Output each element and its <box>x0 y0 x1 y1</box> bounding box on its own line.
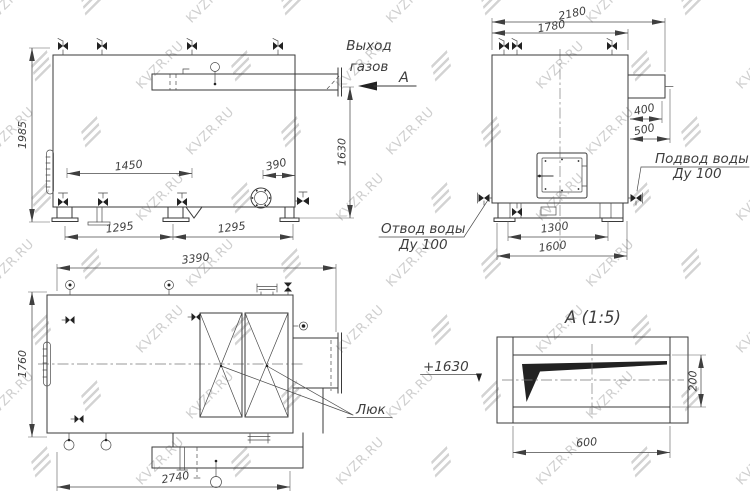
detail-title: А (1:5) <box>564 308 621 327</box>
bottom-fitting <box>101 440 111 450</box>
top-flange <box>257 284 277 295</box>
weld-wedge <box>522 361 667 402</box>
dim-top-span-label: 1450 <box>114 158 143 174</box>
top-view: 3390 1760 2740 Люк <box>16 250 392 491</box>
top-valve <box>607 39 617 56</box>
drain-valve <box>177 193 187 206</box>
water-outlet-label-line2: Ду 100 <box>398 237 448 253</box>
drain-valve <box>58 193 68 206</box>
dim-overall-height-label: 1985 <box>16 121 29 149</box>
dim-height-label: 200 <box>687 371 700 392</box>
side-manhole <box>47 150 54 194</box>
front-view-dimensions: 2180 1780 400 500 1300 1600 <box>492 4 670 260</box>
dim-length-label: 600 <box>576 435 598 450</box>
top-valve <box>273 39 283 56</box>
dim-overall-length-label: 3390 <box>181 250 210 266</box>
water-inlet-callout: Подвод воды Ду 100 <box>637 151 749 191</box>
duct-fitting <box>211 63 220 72</box>
side-view-dimensions: 1985 1630 1450 390 1295 1295 <box>16 48 354 240</box>
burner-flange <box>251 188 271 208</box>
bottom-fitting <box>211 477 222 488</box>
side-valve <box>297 197 309 205</box>
dim-outlet-height-label: 1630 <box>336 138 349 166</box>
top-valve <box>512 39 522 56</box>
detail-view-a: А (1:5) 200 600 +1630 <box>421 308 707 458</box>
side-view: 1985 1630 1450 390 1295 1295 Выход газов… <box>16 38 416 240</box>
boiler-body-side <box>53 55 295 207</box>
water-inlet-label-line2: Ду 100 <box>672 166 722 182</box>
dim-leg-span-2-label: 1295 <box>217 219 246 235</box>
internal-valve <box>188 313 201 321</box>
flue-outlet-front <box>628 75 665 98</box>
hatch-callout: Люк <box>220 365 392 418</box>
internal-valve <box>71 415 84 423</box>
gas-outlet-label-line2: газов <box>350 59 389 75</box>
front-view: 2180 1780 400 500 1300 1600 Подвод воды … <box>379 4 749 260</box>
dim-flue-overall-label: 500 <box>633 121 656 138</box>
dim-base-length-label: 2740 <box>161 469 191 486</box>
drain-valve <box>98 193 108 206</box>
dim-leg-span-label: 1300 <box>540 219 569 235</box>
flue-duct-side <box>152 74 338 90</box>
section-letter: А <box>398 70 409 86</box>
top-valve <box>58 39 68 56</box>
water-outlet-callout: Отвод воды Ду 100 <box>379 200 488 253</box>
dim-overall-width-label: 1760 <box>16 350 29 378</box>
top-valve <box>284 283 292 292</box>
water-outlet-label-line1: Отвод воды <box>381 221 466 237</box>
top-valve <box>499 39 509 56</box>
dim-leg-span-1-label: 1295 <box>105 219 134 235</box>
elevation-mark-label: +1630 <box>423 359 469 375</box>
leg <box>57 207 72 218</box>
boiler-drawing: 1985 1630 1450 390 1295 1295 Выход газов… <box>0 0 750 500</box>
bottom-fitting <box>64 440 74 450</box>
top-valve <box>187 39 197 56</box>
internal-valve <box>62 316 75 324</box>
gas-outlet-label-line1: Выход <box>346 38 392 54</box>
dim-burner-to-wall-label: 390 <box>264 156 288 174</box>
hatch-label: Люк <box>355 402 387 418</box>
dim-flue-length-label: 400 <box>633 101 656 118</box>
elevation-callout: +1630 <box>421 359 483 382</box>
water-inlet-label-line1: Подвод воды <box>655 151 749 167</box>
dim-base-width-label: 1600 <box>538 238 567 254</box>
top-valve <box>97 39 107 56</box>
drain-valve <box>512 203 522 216</box>
elevation-arrow-icon <box>476 374 482 383</box>
drawing-canvas: KVZR.RUKVZR.RUKVZR.RUKVZR.RUKVZR.RUKVZR.… <box>0 0 750 500</box>
